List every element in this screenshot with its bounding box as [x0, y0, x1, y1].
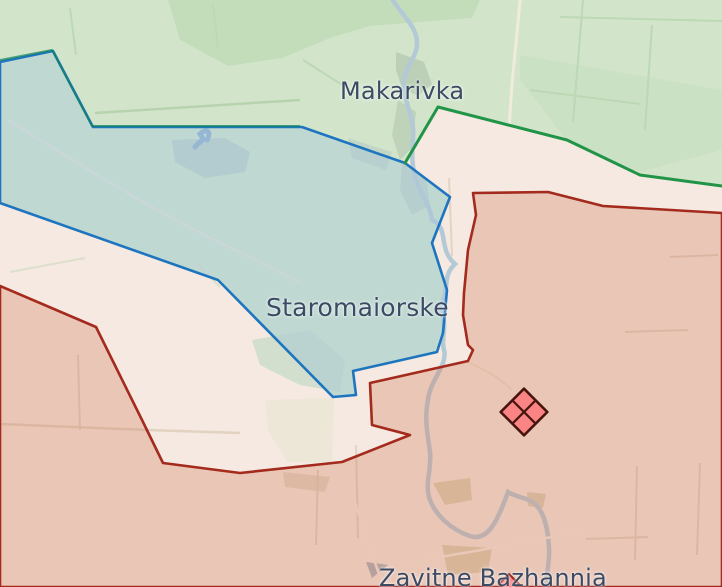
- map-layers: [0, 0, 722, 587]
- map-canvas[interactable]: Makarivka Staromaiorske Zavitne Bazhanni…: [0, 0, 722, 587]
